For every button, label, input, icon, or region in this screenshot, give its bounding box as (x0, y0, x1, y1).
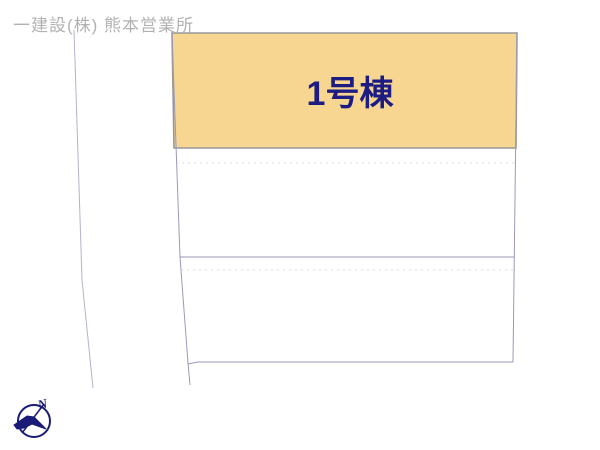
site-plan-canvas: 一建設(株) 熊本営業所 1号棟 N (0, 0, 600, 450)
compass-icon: N (14, 395, 50, 437)
parcel-1-label: 1号棟 (307, 75, 395, 113)
compass-north-label: N (35, 395, 49, 412)
site-plan-drawing: 1号棟 N (0, 0, 600, 450)
road-boundary-line (74, 30, 93, 388)
plot-bottom-boundary (188, 362, 513, 364)
